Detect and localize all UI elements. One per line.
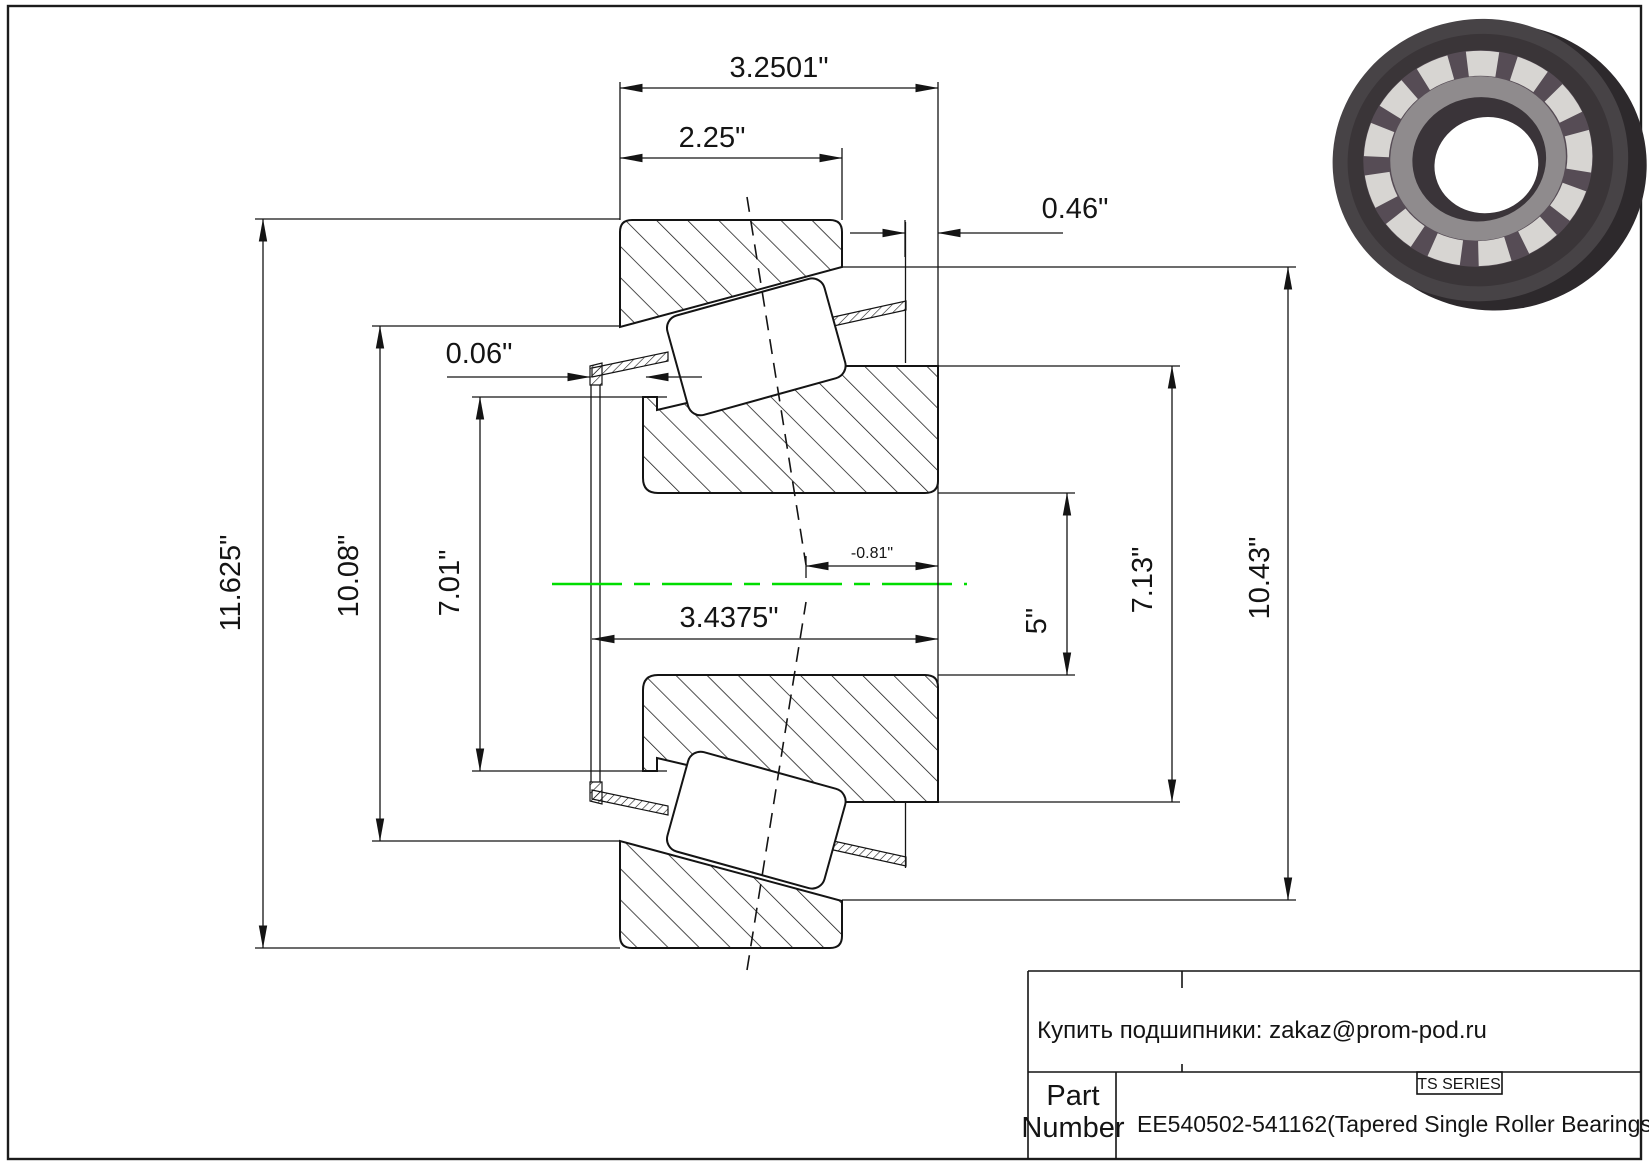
drawing-page: 3.2501" 2.25" 0.46" 0.06" -0.81" 3 bbox=[0, 0, 1649, 1167]
cage-strip-lower-right bbox=[829, 840, 906, 866]
dimension-cone-width: 3.4375" bbox=[592, 602, 938, 639]
cage-lip-upper bbox=[590, 363, 602, 385]
dim-label-bore-diameter: 5" bbox=[1021, 608, 1053, 634]
dim-label-effective-center: -0.81" bbox=[851, 545, 893, 562]
dimension-bore-diameter: 5" bbox=[938, 493, 1075, 675]
part-number-value: EE540502-541162(Tapered Single Roller Be… bbox=[1137, 1111, 1649, 1137]
section-view bbox=[552, 197, 967, 970]
dim-label-cup-front-inner-diameter: 10.08" bbox=[333, 535, 365, 618]
dimension-cup-width: 2.25" bbox=[620, 122, 842, 158]
title-block: Купить подшипники: zakaz@prom-pod.ru TS … bbox=[1021, 971, 1649, 1159]
series-label: TS SERIES bbox=[1417, 1076, 1501, 1093]
cage-strip-lower-left bbox=[592, 790, 668, 815]
cage-strip-upper-right bbox=[829, 301, 906, 327]
dimension-cone-back-rib-diameter: 7.13" bbox=[938, 366, 1180, 802]
dim-label-overall-width: 3.2501" bbox=[730, 52, 829, 84]
bearing-photo bbox=[1310, 0, 1649, 336]
dim-label-standout: 0.46" bbox=[1042, 193, 1109, 225]
part-label-line1: Part bbox=[1046, 1080, 1099, 1112]
dim-label-cone-width: 3.4375" bbox=[680, 602, 779, 634]
dim-label-cone-front-rib-diameter: 7.01" bbox=[434, 550, 466, 617]
cage-strip-upper-left bbox=[592, 352, 668, 377]
dimension-effective-center: -0.81" bbox=[806, 545, 938, 566]
engineering-drawing: 3.2501" 2.25" 0.46" 0.06" -0.81" 3 bbox=[0, 0, 1649, 1167]
part-label-line2: Number bbox=[1021, 1112, 1124, 1144]
dimension-overall-width: 3.2501" bbox=[620, 52, 938, 88]
contact-text: Купить подшипники: zakaz@prom-pod.ru bbox=[1037, 1017, 1487, 1044]
dim-label-cone-back-rib-diameter: 7.13" bbox=[1127, 547, 1159, 614]
dim-label-cup-width: 2.25" bbox=[679, 122, 746, 154]
dimension-standout: 0.46" bbox=[850, 193, 1108, 257]
dim-label-cup-back-inner-diameter: 10.43" bbox=[1244, 537, 1276, 620]
dim-label-outer-diameter: 11.625" bbox=[215, 535, 247, 632]
dimension-cone-front-rib-diameter: 7.01" bbox=[434, 397, 667, 771]
cage-lip-lower bbox=[590, 782, 602, 804]
dim-label-cage-clearance: 0.06" bbox=[446, 338, 513, 370]
